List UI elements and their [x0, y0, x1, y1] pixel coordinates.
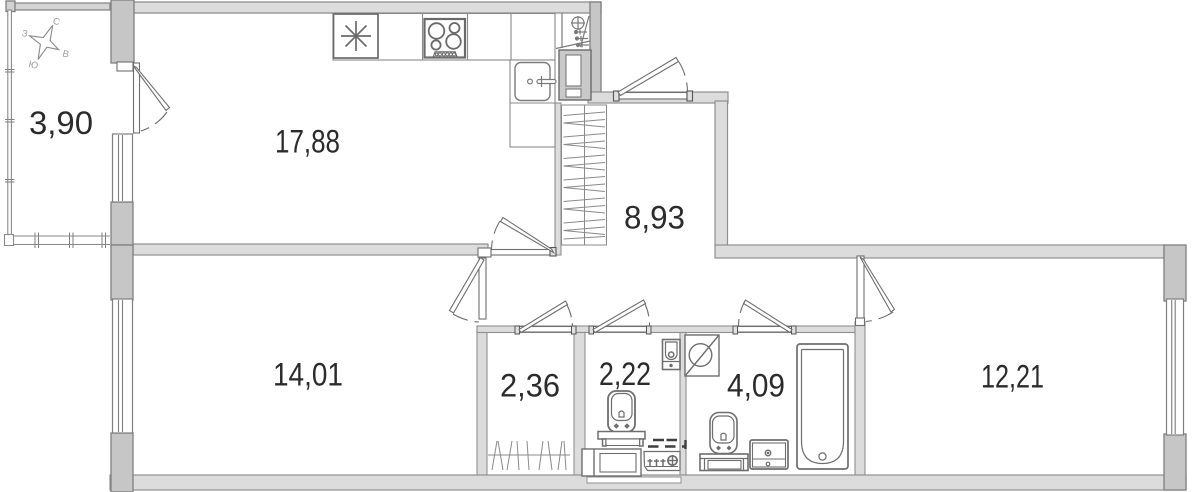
- svg-text:8,93: 8,93: [624, 200, 685, 236]
- svg-text:14,01: 14,01: [273, 357, 343, 393]
- svg-text:4,09: 4,09: [727, 368, 785, 404]
- svg-text:2,22: 2,22: [599, 356, 651, 392]
- svg-text:17,88: 17,88: [275, 124, 340, 160]
- svg-text:3,90: 3,90: [29, 105, 93, 141]
- svg-text:12,21: 12,21: [981, 359, 1044, 395]
- svg-text:2,36: 2,36: [500, 368, 560, 404]
